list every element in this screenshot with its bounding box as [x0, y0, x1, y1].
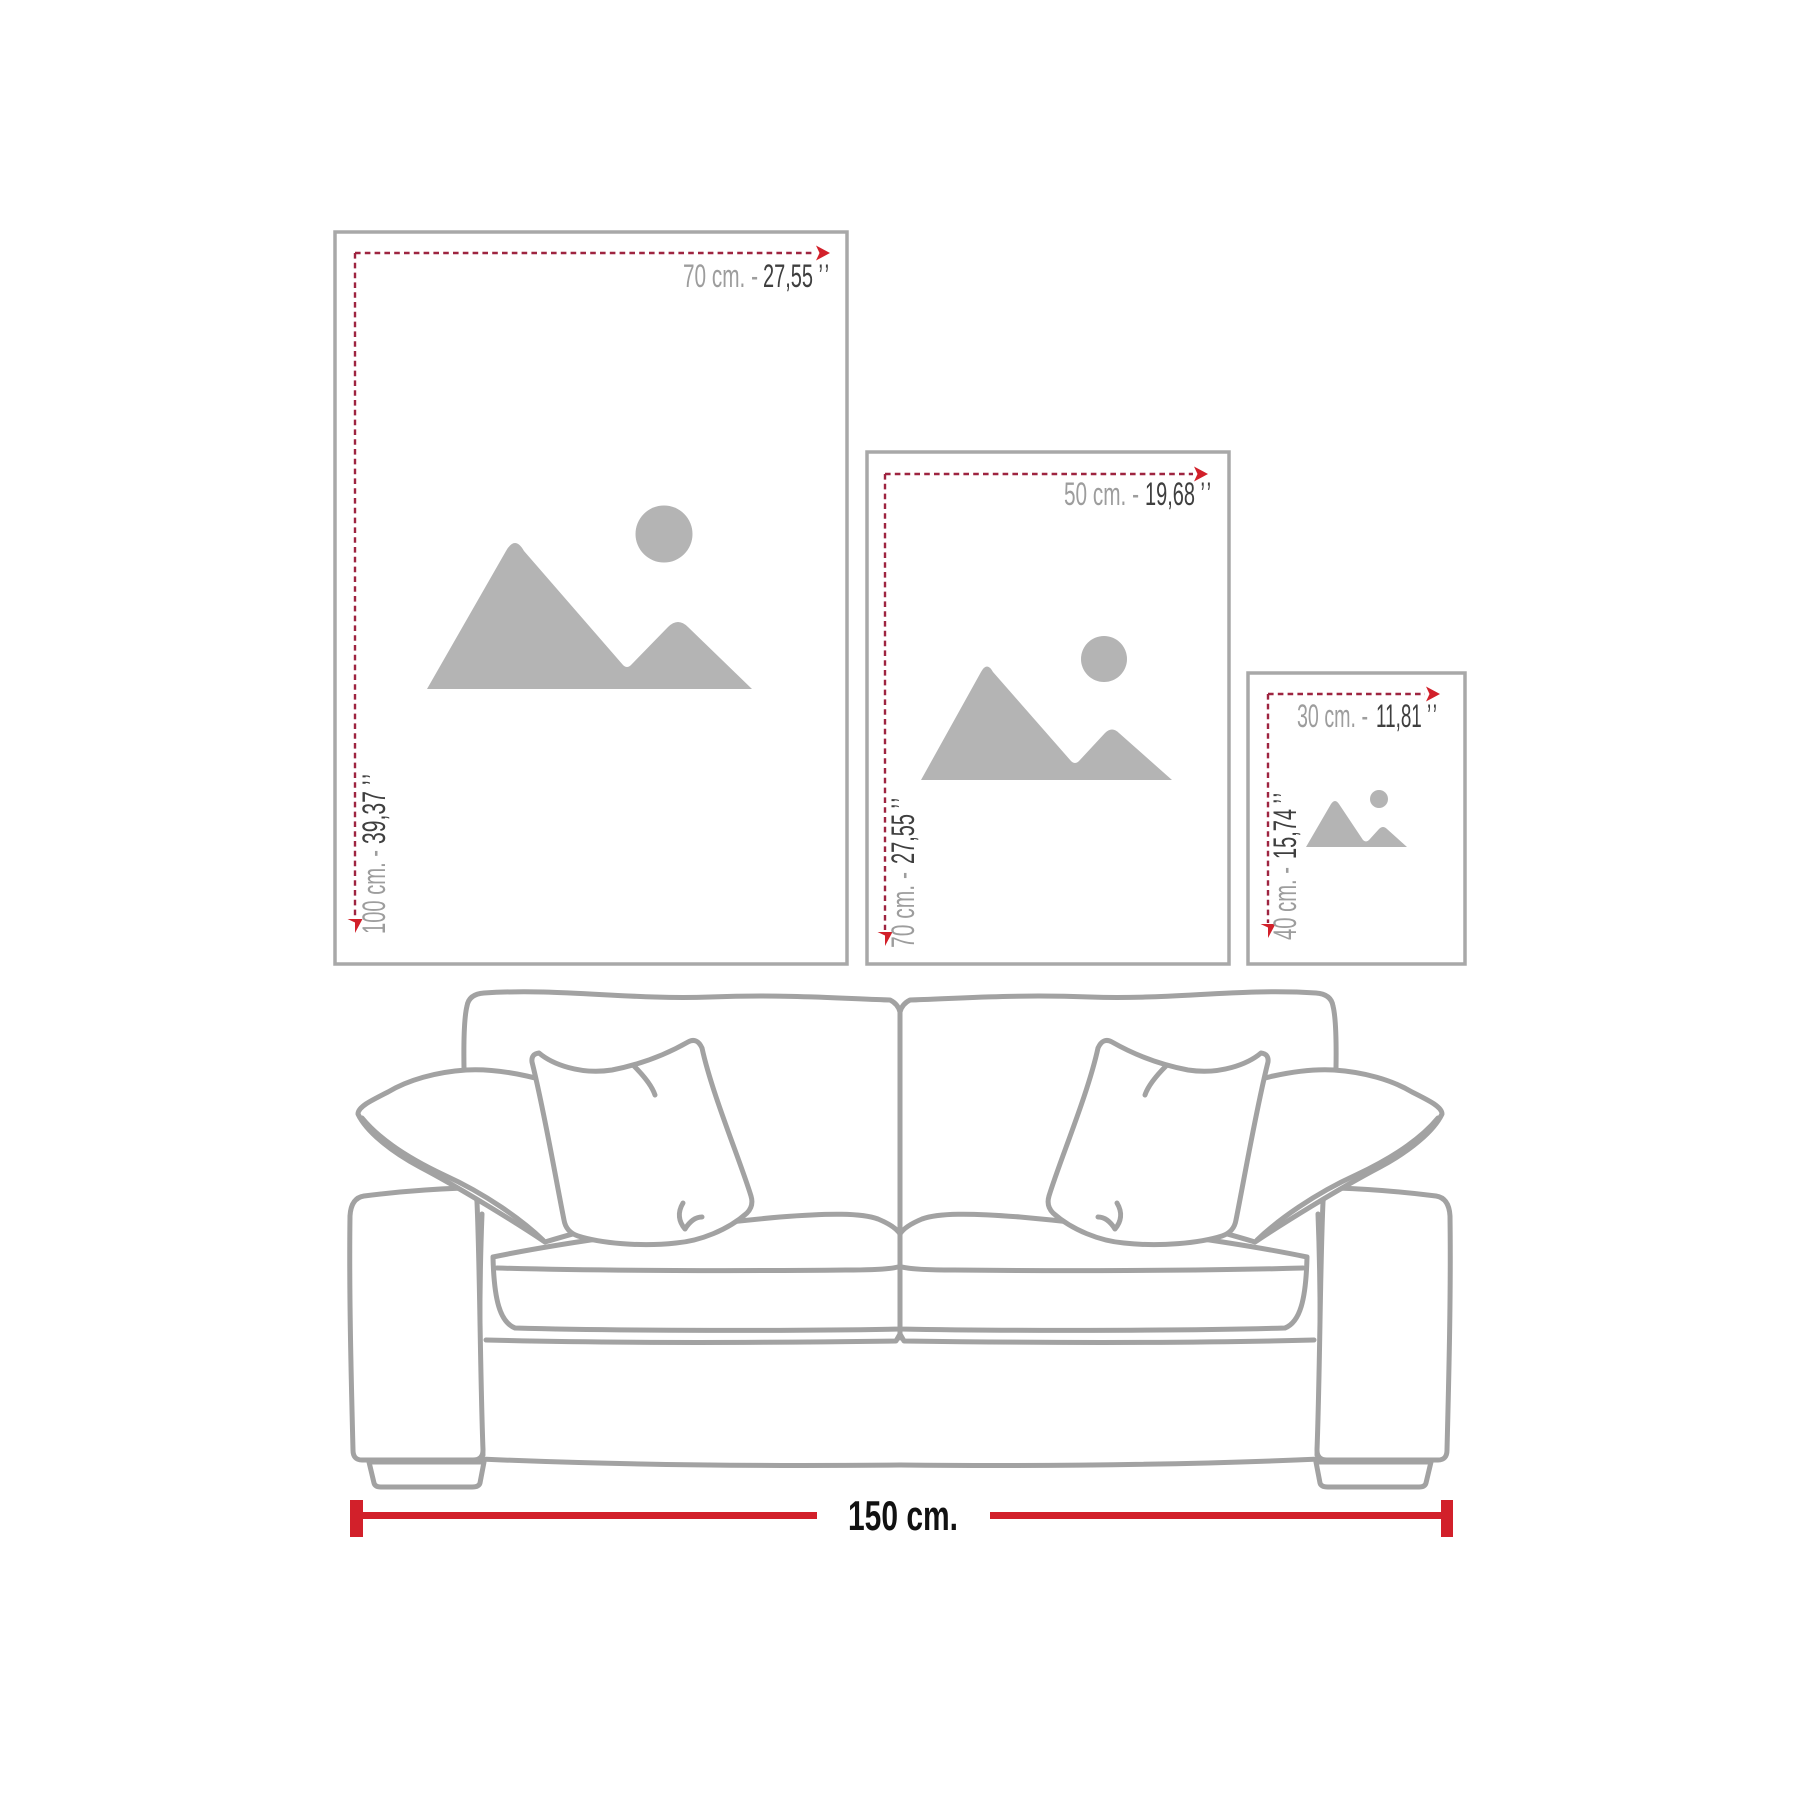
svg-text:30 cm. -: 30 cm. - [1297, 698, 1368, 734]
svg-text:50 cm. -: 50 cm. - [1064, 476, 1139, 512]
svg-text:27,55 ’ ’: 27,55 ’ ’ [763, 258, 829, 294]
svg-text:70 cm. -: 70 cm. - [683, 258, 758, 294]
svg-text:70 cm. -: 70 cm. - [885, 872, 921, 948]
svg-text:19,68 ’ ’: 19,68 ’ ’ [1145, 476, 1211, 512]
svg-text:39,37 ’ ’: 39,37 ’ ’ [356, 774, 392, 844]
svg-text:100 cm. -: 100 cm. - [356, 850, 392, 934]
svg-text:27,55 ’ ’: 27,55 ’ ’ [885, 798, 921, 864]
svg-text:15,74 ’ ’: 15,74 ’ ’ [1267, 793, 1303, 859]
svg-text:11,81 ’ ’: 11,81 ’ ’ [1376, 698, 1437, 734]
svg-text:40 cm. -: 40 cm. - [1267, 867, 1303, 940]
svg-text:150 cm.: 150 cm. [848, 1492, 958, 1539]
